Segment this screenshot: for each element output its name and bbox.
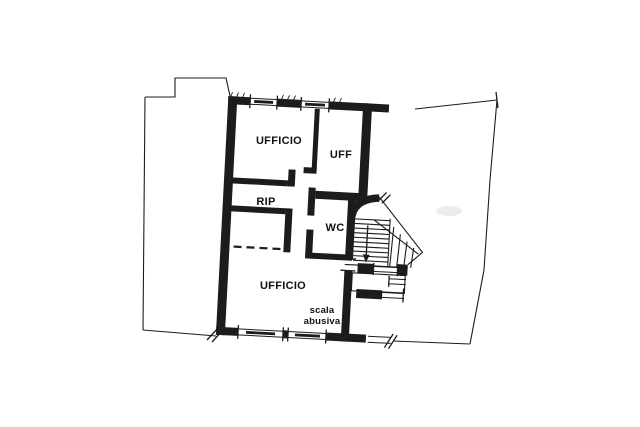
top-window-1 [250, 98, 277, 105]
landing-bottom-window [382, 287, 405, 302]
bottom-wall [216, 324, 398, 349]
boundary-right-edge [470, 100, 497, 344]
rip-top-wall [231, 166, 296, 186]
boundary-bottom-edge [393, 341, 470, 344]
boundary-left-edge [143, 97, 145, 330]
stair-outer-edge [376, 197, 425, 265]
stair-direction-arrow [362, 225, 371, 262]
boundary-topleft-step [145, 78, 230, 97]
floorplan-drawing: UFFICIO UFF RIP WC UFFICIO scala abusiva [0, 0, 640, 427]
landing-bottom-wall [356, 289, 382, 299]
rip-bottom-wall [227, 205, 292, 252]
right-wall-upper [358, 103, 372, 202]
label-wc: WC [326, 222, 345, 234]
top-window-2 [301, 101, 329, 108]
landing-window-right [389, 276, 407, 288]
label-scala: scala [310, 305, 335, 316]
room-labels: UFFICIO UFF RIP WC UFFICIO scala abusiva [256, 135, 352, 327]
label-uff: UFF [330, 149, 352, 161]
stair-landing [351, 262, 408, 303]
bottom-window-2 [288, 332, 326, 340]
boundary-top-edge [415, 100, 497, 109]
label-ufficio-bottom: UFFICIO [260, 280, 306, 292]
label-rip: RIP [256, 196, 275, 208]
left-wall [216, 96, 237, 335]
scan-smudge-artifact [436, 206, 462, 216]
stair-flight-divider [388, 219, 391, 267]
bottom-window-1 [238, 329, 283, 337]
stair-treads [353, 219, 390, 262]
bottom-right-exterior-window [367, 333, 397, 349]
partition-ufficio-uff [303, 108, 319, 174]
dashed-partition-line [234, 247, 284, 250]
boundary-bottomleft-edge [143, 330, 216, 336]
bottom-window-jambs [238, 325, 327, 344]
label-abusiva: abusiva [304, 316, 341, 327]
scanned-floorplan-page: UFFICIO UFF RIP WC UFFICIO scala abusiva [0, 0, 640, 427]
label-ufficio-top: UFFICIO [256, 135, 302, 147]
